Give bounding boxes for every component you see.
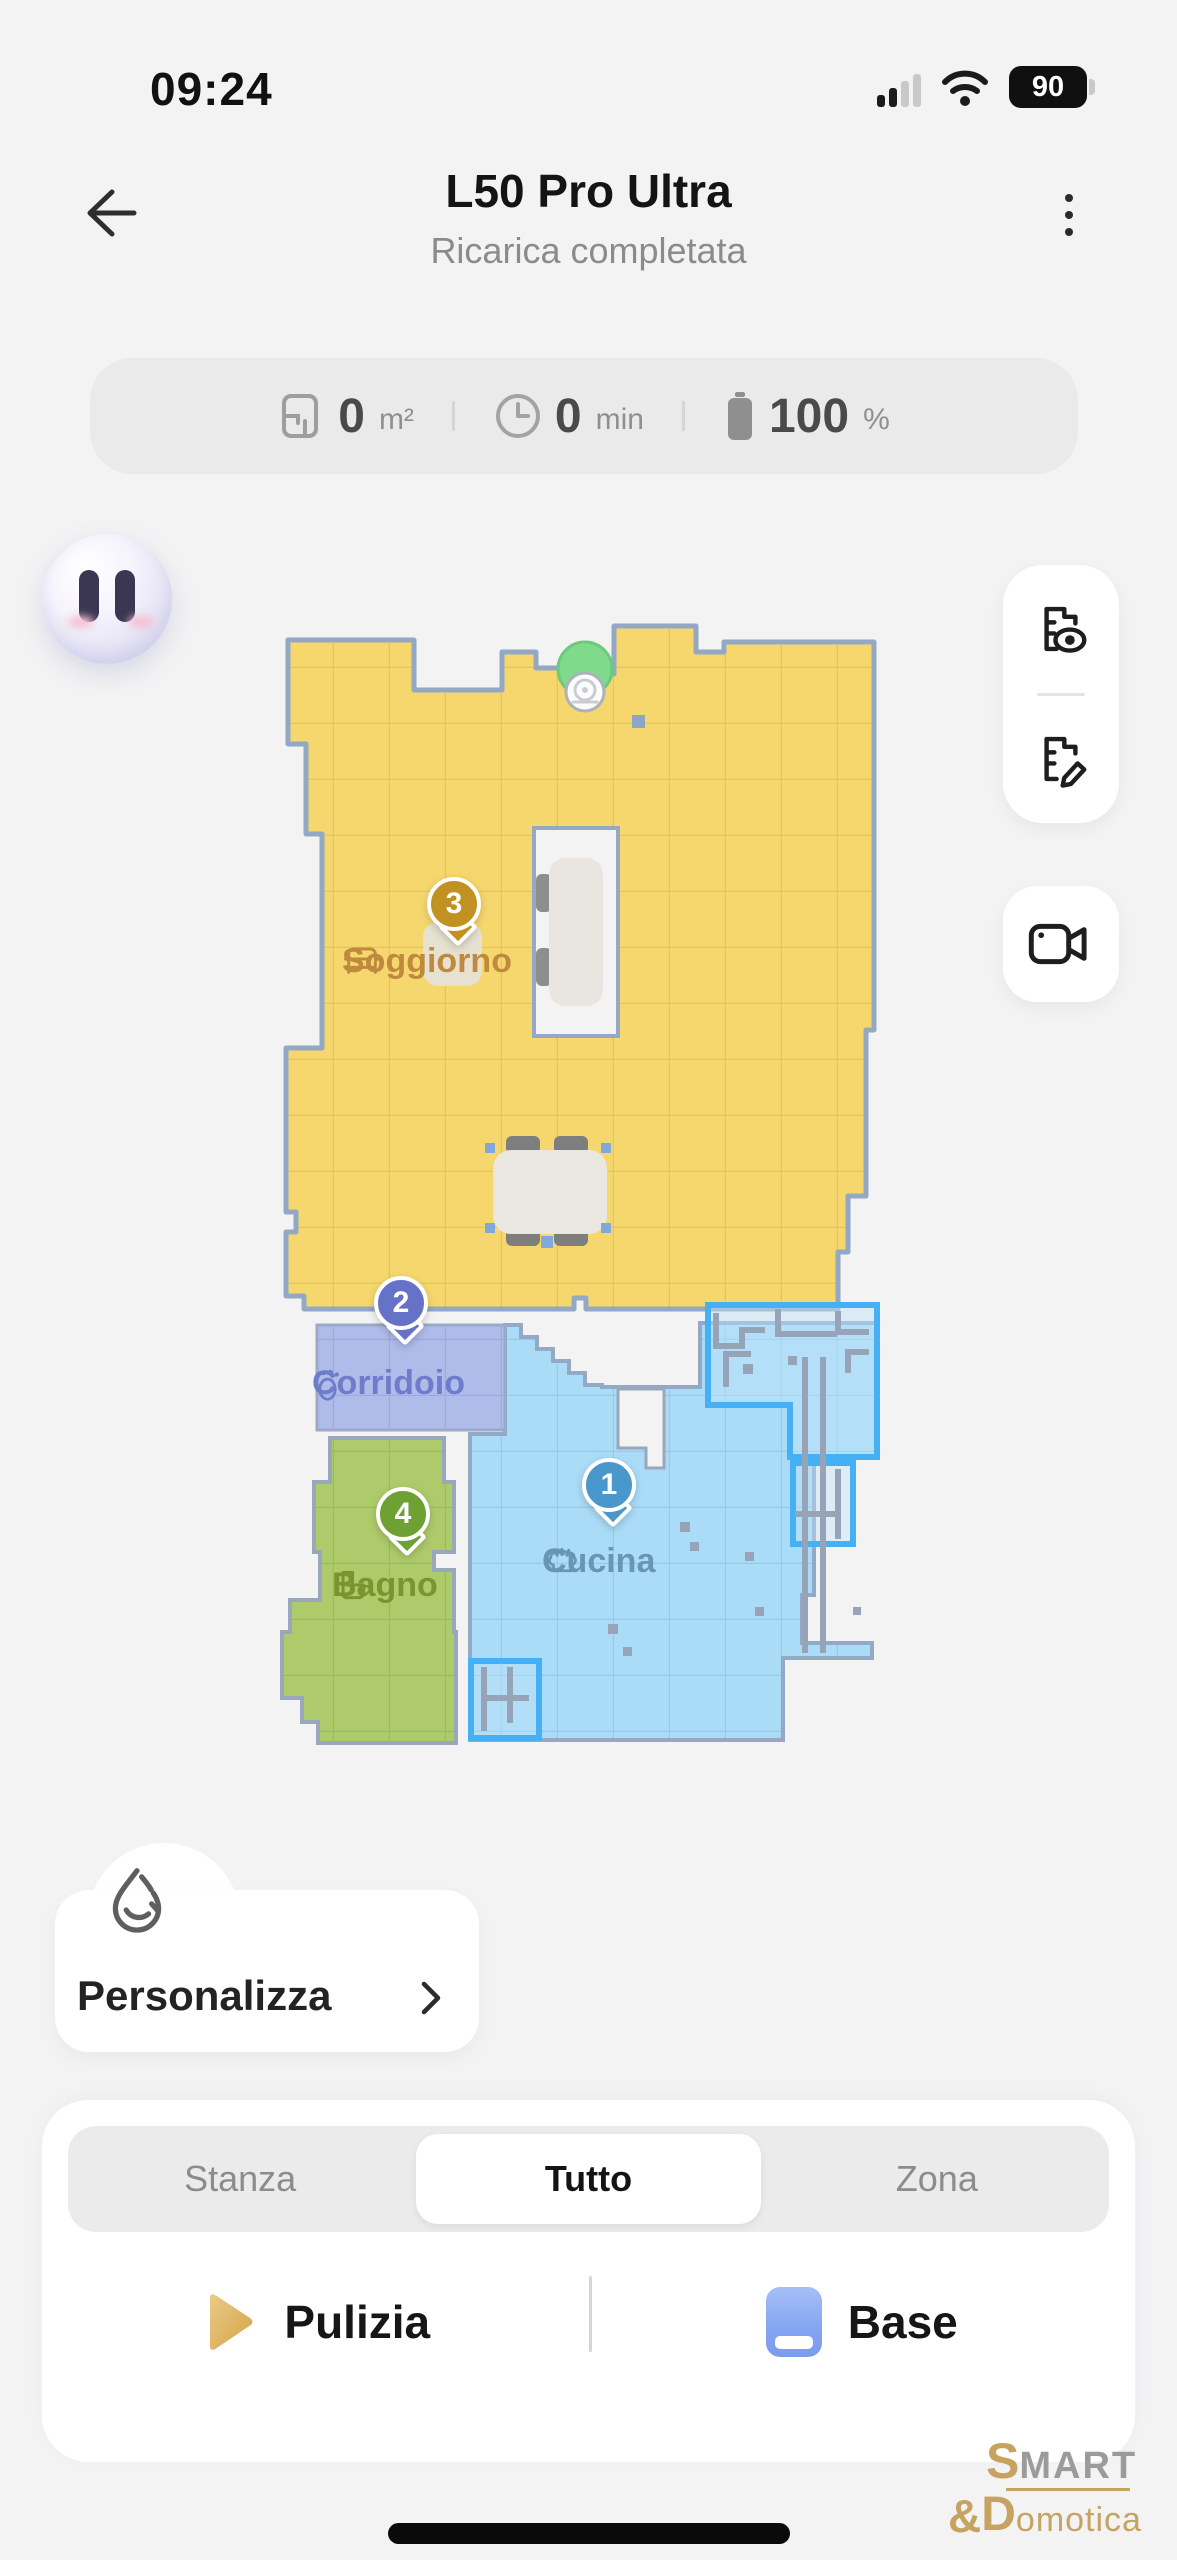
stat-battery-value: 100	[769, 389, 849, 444]
stat-battery-unit: %	[863, 395, 890, 437]
personalizza-label: Personalizza	[77, 1972, 331, 2020]
stat-area-unit: m²	[379, 395, 414, 437]
chevron-right-icon	[418, 1978, 444, 2023]
map-view-button[interactable]	[1029, 597, 1093, 661]
robot-vacuum-icon	[566, 673, 604, 711]
video-camera-icon	[1028, 919, 1094, 969]
pin-circle: 4	[376, 1487, 430, 1541]
pin-circle: 3	[427, 877, 481, 931]
pin-number: 3	[446, 887, 463, 921]
selection-handle	[485, 1143, 495, 1153]
stat-battery: 100 %	[723, 389, 890, 444]
page-title: L50 Pro Ultra	[0, 164, 1177, 218]
room-label-soggiorno[interactable]: Soggiorno	[342, 942, 512, 981]
cellular-signal-icon	[877, 67, 921, 107]
header: L50 Pro Ultra Ricarica completata	[0, 150, 1177, 310]
smart-domotica-watermark: SMART &Domotica	[948, 2436, 1158, 2539]
avatar-blush	[68, 616, 94, 628]
map-dot	[632, 715, 645, 728]
control-panel: Stanza Tutto Zona Pulizia Base	[42, 2100, 1135, 2462]
watermark-accent: D	[981, 2491, 1016, 2539]
app-screen: 09:24 90 L50 Pro Ultra Ricarica completa…	[0, 0, 1177, 2560]
avatar-eye	[115, 570, 135, 622]
table-object	[493, 1150, 607, 1234]
chef-hat-icon	[542, 1542, 582, 1582]
room-label-corridoio[interactable]: Corridoio	[312, 1364, 465, 1403]
pin-circle: 2	[374, 1276, 428, 1330]
battery-icon: 90	[1009, 66, 1087, 108]
home-indicator[interactable]	[388, 2523, 790, 2544]
tab-tutto[interactable]: Tutto	[416, 2134, 760, 2224]
footprints-icon	[312, 1364, 346, 1402]
map-eye-icon	[1030, 598, 1092, 660]
stat-area: 0 m²	[278, 389, 414, 444]
action-row: Pulizia Base	[42, 2232, 1135, 2412]
pin-number: 1	[601, 1468, 618, 1502]
dock-button[interactable]: Base	[589, 2232, 1136, 2412]
dock-icon	[766, 2287, 822, 2357]
map-edit-button[interactable]	[1029, 727, 1093, 791]
camera-button[interactable]	[1003, 886, 1119, 1002]
water-drop-icon	[100, 1862, 174, 1943]
wifi-icon	[939, 67, 991, 107]
floor-map[interactable]: 1 2 3 4 Soggiorno	[278, 612, 898, 1792]
watermark-amp: &	[948, 2493, 981, 2539]
stat-time: 0 min	[493, 389, 644, 444]
toilet-icon	[332, 1566, 370, 1604]
robot-battery-icon	[723, 390, 757, 442]
status-bar: 09:24 90	[0, 0, 1177, 150]
clean-button-label: Pulizia	[284, 2295, 430, 2349]
stat-time-unit: min	[596, 395, 644, 437]
clock-time: 09:24	[150, 62, 273, 116]
watermark-accent: S	[986, 2433, 1019, 2489]
divider	[452, 401, 455, 431]
robot-face-avatar[interactable]	[42, 534, 172, 664]
map-edit-icon	[1030, 728, 1092, 790]
room-pin-soggiorno[interactable]: 3	[427, 877, 481, 949]
room-label-bagno[interactable]: Bagno	[332, 1566, 438, 1605]
sofa-icon	[342, 942, 382, 976]
selection-handle	[601, 1223, 611, 1233]
cleaning-stats-bar: 0 m² 0 min 100 %	[90, 358, 1078, 474]
avatar-blush	[128, 616, 154, 628]
clock-icon	[493, 391, 543, 441]
selection-handle	[601, 1143, 611, 1153]
divider	[1037, 693, 1085, 696]
dock-button-label: Base	[848, 2295, 958, 2349]
floor-area-icon	[278, 392, 326, 440]
stat-time-value: 0	[555, 389, 582, 444]
watermark-text: omotica	[1016, 2503, 1142, 2539]
divider	[682, 401, 685, 431]
more-menu-button[interactable]	[1049, 180, 1089, 250]
pin-number: 2	[393, 1286, 410, 1320]
stat-area-value: 0	[338, 389, 365, 444]
avatar-eye	[79, 570, 99, 622]
room-label-cucina[interactable]: Cucina	[542, 1542, 655, 1581]
table-object	[549, 858, 603, 1006]
play-icon	[200, 2290, 258, 2354]
pin-circle: 1	[582, 1458, 636, 1512]
room-pin-cucina[interactable]: 1	[582, 1458, 636, 1530]
clean-button[interactable]: Pulizia	[42, 2232, 589, 2412]
status-subtitle: Ricarica completata	[0, 230, 1177, 272]
watermark-text: MART	[1019, 2445, 1137, 2487]
selection-handle	[541, 1236, 553, 1248]
room-pin-corridoio[interactable]: 2	[374, 1276, 428, 1348]
selection-handle	[485, 1223, 495, 1233]
pin-number: 4	[395, 1497, 412, 1531]
status-icons: 90	[877, 66, 1087, 108]
mode-segmented-control: Stanza Tutto Zona	[68, 2126, 1109, 2232]
tab-zona[interactable]: Zona	[765, 2126, 1109, 2232]
divider	[589, 2276, 592, 2352]
tab-stanza[interactable]: Stanza	[68, 2126, 412, 2232]
room-pin-bagno[interactable]: 4	[376, 1487, 430, 1559]
battery-percent: 90	[1032, 71, 1064, 104]
map-tools	[1003, 565, 1119, 823]
